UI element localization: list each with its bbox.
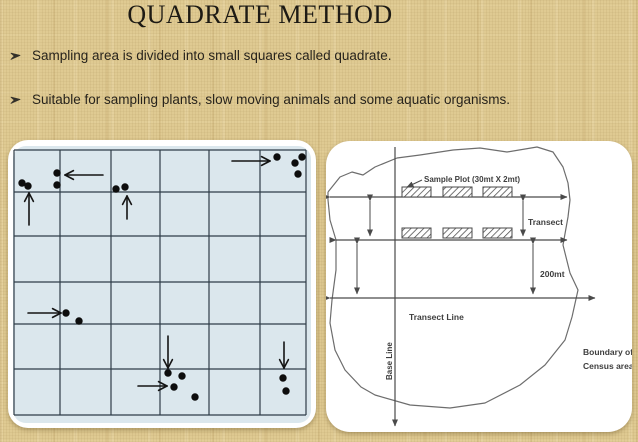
transect-diagram-svg: Sample Plot (30mt X 2mt) Transect 200mt …	[326, 141, 632, 432]
sample-plot-label: Sample Plot (30mt X 2mt)	[424, 175, 520, 184]
organism-dot	[53, 181, 60, 188]
organism-dot	[279, 374, 286, 381]
organism-dot	[291, 159, 298, 166]
organism-dot	[178, 372, 185, 379]
quadrat-grid-figure	[8, 140, 316, 428]
organism-dot	[282, 387, 289, 394]
organism-dot	[75, 317, 82, 324]
organism-dot	[191, 393, 198, 400]
bullet-text: Suitable for sampling plants, slow movin…	[32, 92, 510, 108]
transect-diagram-figure: Sample Plot (30mt X 2mt) Transect 200mt …	[326, 141, 632, 432]
bullet-item: Suitable for sampling plants, slow movin…	[10, 92, 625, 108]
bullet-text: Sampling area is divided into small squa…	[32, 48, 391, 64]
transect-line-label: Transect Line	[409, 312, 464, 322]
organism-dot	[53, 169, 60, 176]
organism-dot	[170, 383, 177, 390]
sample-plot	[443, 187, 472, 197]
sample-plot	[483, 187, 512, 197]
organism-dot	[112, 185, 119, 192]
organism-dot	[24, 182, 31, 189]
sample-plot-leader-arrow	[407, 180, 422, 187]
sample-plot	[483, 228, 512, 238]
organism-dot	[164, 369, 171, 376]
organism-dot	[298, 153, 305, 160]
organism-dot	[121, 183, 128, 190]
sample-plot	[402, 187, 431, 197]
boundary-label-line1: Boundary of	[583, 347, 632, 357]
bullet-arrow-icon	[10, 94, 22, 106]
base-line-label: Base Line	[385, 342, 394, 380]
sample-plot	[443, 228, 472, 238]
slide: QUADRATE METHOD Sampling area is divided…	[0, 0, 638, 442]
quadrat-grid-svg	[8, 140, 316, 428]
organism-dot	[294, 170, 301, 177]
distance-label: 200mt	[540, 269, 565, 279]
bullet-item: Sampling area is divided into small squa…	[10, 48, 625, 64]
organism-dot	[62, 309, 69, 316]
page-title: QUADRATE METHOD	[0, 0, 520, 30]
boundary-label-line2: Census area	[583, 361, 632, 371]
transect-label: Transect	[528, 217, 563, 227]
bullet-arrow-icon	[10, 50, 22, 62]
sample-plot	[402, 228, 431, 238]
organism-dot	[273, 153, 280, 160]
